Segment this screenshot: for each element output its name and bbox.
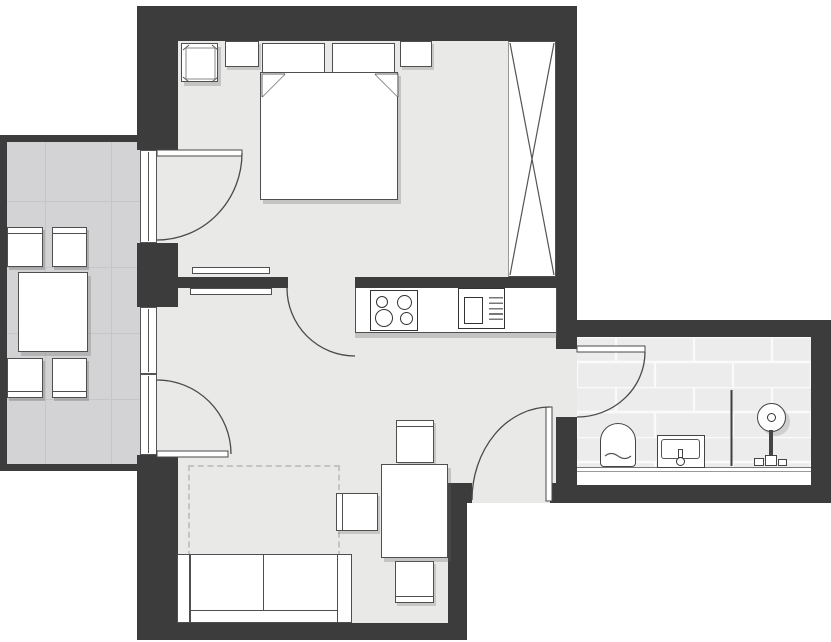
sink-drainer-lines xyxy=(489,297,503,324)
balcony-door-bedroom xyxy=(140,150,157,243)
wall-bathroom-top xyxy=(577,320,831,337)
double-bed xyxy=(260,72,398,200)
dining-chair-left xyxy=(336,493,378,531)
door-frame-line xyxy=(148,152,149,241)
sink-basin xyxy=(464,297,483,324)
wall-left-upper xyxy=(137,41,178,150)
shower-base-part xyxy=(754,458,764,466)
wall-right-main xyxy=(556,6,577,349)
dining-chair-bottom xyxy=(395,561,434,603)
chair-backrest xyxy=(7,227,43,234)
sofa-armrest-right xyxy=(337,554,352,623)
wall-bathroom-right xyxy=(811,320,831,503)
balcony-chair-top-right xyxy=(52,227,87,267)
balcony-table xyxy=(18,272,88,352)
nightstand-left xyxy=(225,41,259,67)
shower-base xyxy=(754,452,788,467)
sofa xyxy=(177,554,352,623)
bedroom-stool xyxy=(181,43,218,82)
chair-backrest xyxy=(52,391,87,398)
sofa-seat-right xyxy=(263,554,338,611)
shower-base-part xyxy=(778,459,787,466)
wall-bottom xyxy=(137,623,467,640)
wall-entry-left-stub xyxy=(448,483,472,503)
balcony-chair-top-left xyxy=(7,227,43,267)
balcony-tile-line xyxy=(7,201,140,202)
burner-large xyxy=(375,309,393,327)
faucet-knob xyxy=(676,457,685,466)
chair-backrest xyxy=(7,391,43,398)
living-window xyxy=(140,307,157,374)
balcony-tile-line xyxy=(7,399,140,400)
balcony-chair-bottom-left xyxy=(7,358,43,398)
shower-head-center xyxy=(767,413,776,422)
wall-bathroom-bottom xyxy=(556,485,831,503)
shower-base-part xyxy=(765,455,777,466)
wall-left-mid xyxy=(137,243,178,307)
sofa-seat-left xyxy=(190,554,264,611)
kitchen-sink-unit xyxy=(458,288,505,329)
stool-corner-ticks xyxy=(182,44,219,83)
wall-divider-right xyxy=(355,277,556,288)
bathroom-ledge-line xyxy=(577,471,811,472)
chair-backrest xyxy=(52,227,87,234)
wall-left-lower xyxy=(137,455,178,623)
bed-pillow-left xyxy=(262,43,325,74)
door-frame-line xyxy=(148,376,149,453)
wardrobe-x-symbol xyxy=(509,42,555,276)
burner-small-2 xyxy=(400,312,413,325)
balcony-parapet-bottom xyxy=(0,464,140,471)
bathroom-ledge xyxy=(577,467,811,485)
chair-backrest xyxy=(396,420,434,427)
shower-head xyxy=(757,403,786,432)
dining-table xyxy=(381,464,448,558)
burner-medium xyxy=(397,295,412,310)
wall-top xyxy=(137,6,577,41)
wall-entry-vertical xyxy=(448,503,467,640)
rug-dashed-outline xyxy=(188,465,340,557)
chair-backrest xyxy=(336,493,343,531)
bed-sheet-folds xyxy=(261,73,399,201)
sofa-armrest-left xyxy=(177,554,190,623)
dining-chair-top xyxy=(396,420,434,463)
nightstand-right xyxy=(400,41,432,67)
wall-shelf-upper xyxy=(192,267,270,274)
cooktop xyxy=(370,290,418,331)
chair-backrest xyxy=(395,596,434,603)
window-glazing-line xyxy=(148,309,149,372)
wall-shelf-lower xyxy=(190,288,272,295)
wall-divider-left xyxy=(178,277,288,288)
sofa-backrest xyxy=(190,610,338,623)
washbasin xyxy=(657,435,705,468)
balcony-tile-line xyxy=(111,142,112,464)
floor-plan xyxy=(0,0,831,642)
balcony-parapet-top xyxy=(0,135,140,142)
balcony-door-living xyxy=(140,374,157,455)
balcony-parapet-left xyxy=(0,135,7,471)
toilet-water-line xyxy=(601,424,635,466)
wardrobe xyxy=(508,41,556,277)
balcony-chair-bottom-right xyxy=(52,358,87,398)
floor-bathroom-doorway xyxy=(556,349,577,417)
burner-small xyxy=(376,296,388,308)
bed-pillow-right xyxy=(332,43,395,74)
toilet xyxy=(600,423,636,467)
balcony-tile-line xyxy=(7,267,140,268)
